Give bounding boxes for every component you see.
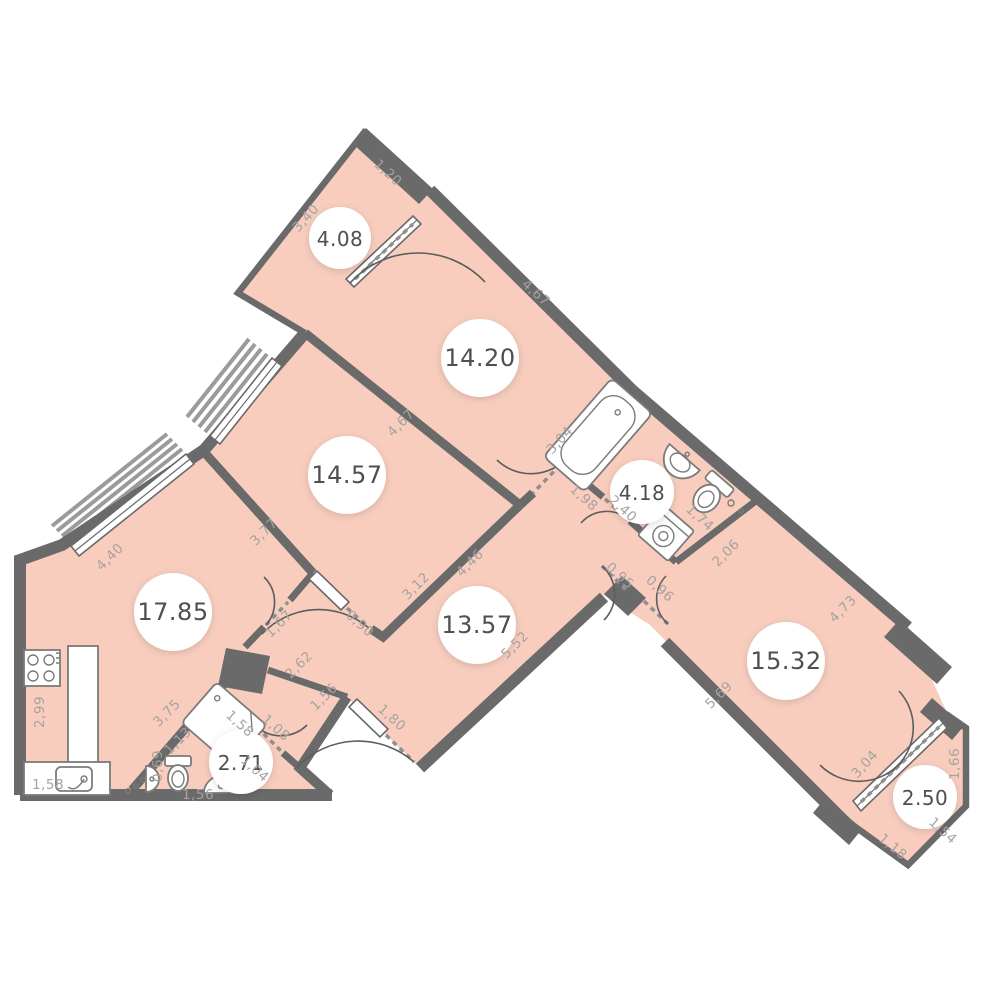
area-label: 15.32 — [750, 647, 821, 675]
badge-room-right: 15.32 — [747, 622, 825, 700]
area-label: 14.20 — [444, 344, 515, 372]
dim-label: 1,66 — [947, 748, 963, 780]
badge-room-middle: 14.57 — [308, 436, 386, 514]
badge-kitchen: 17.85 — [134, 573, 212, 651]
area-label: 4.08 — [317, 227, 364, 251]
dim-label: 1,58 — [32, 777, 64, 793]
area-label: 13.57 — [441, 611, 512, 639]
dim-label: 1,56 — [182, 787, 214, 803]
stove-icon — [24, 650, 60, 686]
dim-label: 2,99 — [32, 696, 48, 728]
area-label: 17.85 — [137, 598, 208, 626]
area-label: 2.50 — [902, 786, 949, 810]
dim-label: 0,69 — [150, 750, 166, 782]
floor-plan-page: 4.08 14.20 14.57 17.85 13.57 4.18 15.32 — [0, 0, 1000, 1000]
floor-plan-canvas: 4.08 14.20 14.57 17.85 13.57 4.18 15.32 — [0, 0, 1000, 1000]
badge-room-upper: 14.20 — [441, 319, 519, 397]
area-label: 14.57 — [311, 461, 382, 489]
